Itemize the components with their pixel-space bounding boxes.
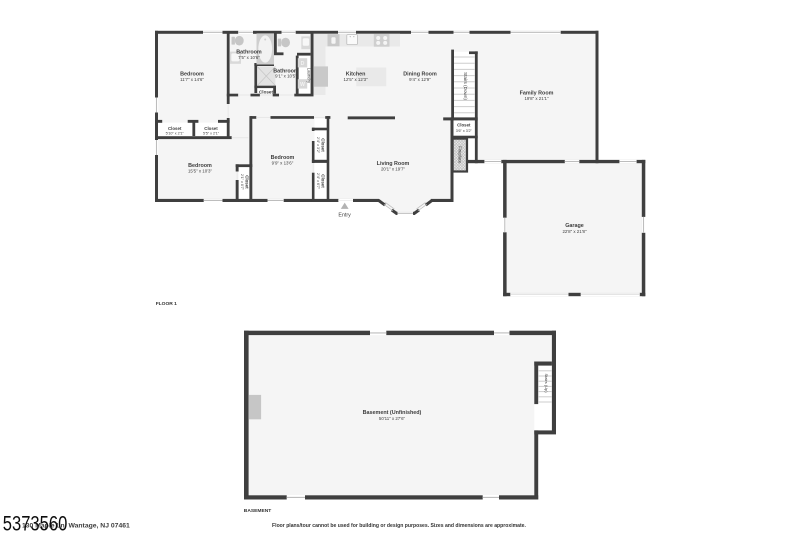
- svg-text:2'4" x 6'7": 2'4" x 6'7": [316, 173, 320, 190]
- svg-text:Closet: Closet: [259, 90, 274, 95]
- svg-text:9'4" x 12'9": 9'4" x 12'9": [409, 77, 431, 82]
- svg-text:Floor plans/tour cannot be use: Floor plans/tour cannot be used for buil…: [272, 523, 526, 529]
- svg-text:2'1" x 6'7": 2'1" x 6'7": [240, 174, 244, 191]
- svg-text:50'11" x 27'6": 50'11" x 27'6": [379, 416, 406, 421]
- svg-text:5'5" x 2'1": 5'5" x 2'1": [203, 131, 220, 135]
- svg-text:11'7" x 14'6": 11'7" x 14'6": [180, 77, 204, 82]
- svg-text:FLOOR 1: FLOOR 1: [156, 301, 177, 307]
- svg-text:9'9" x 13'6": 9'9" x 13'6": [272, 160, 294, 165]
- svg-text:22'8" x 21'8": 22'8" x 21'8": [562, 229, 587, 234]
- svg-text:Stairs (Down): Stairs (Down): [463, 72, 468, 100]
- svg-text:5'10" x 2'1": 5'10" x 2'1": [166, 131, 185, 135]
- svg-text:Fireplace: Fireplace: [457, 146, 462, 164]
- svg-text:Stairs (Up): Stairs (Up): [544, 373, 549, 393]
- svg-text:7'5" x 10'6": 7'5" x 10'6": [238, 55, 260, 60]
- svg-text:W: W: [300, 82, 305, 88]
- svg-text:Entry: Entry: [338, 213, 351, 219]
- svg-text:D: D: [301, 61, 305, 67]
- svg-text:Closet: Closet: [320, 138, 325, 152]
- svg-text:5373560: 5373560: [3, 512, 68, 533]
- svg-text:20'1" x 19'7": 20'1" x 19'7": [381, 167, 406, 172]
- svg-text:9'1" x 10'5": 9'1" x 10'5": [275, 73, 297, 78]
- svg-text:Closet: Closet: [244, 175, 249, 189]
- svg-text:Closet: Closet: [457, 123, 471, 128]
- svg-text:2'4" x 3'2": 2'4" x 3'2": [316, 137, 320, 154]
- svg-text:3'6" x 3'2": 3'6" x 3'2": [456, 129, 473, 133]
- svg-text:Closet: Closet: [204, 126, 218, 131]
- svg-text:19'8" x 21'1": 19'8" x 21'1": [524, 96, 549, 101]
- svg-text:BASEMENT: BASEMENT: [244, 508, 271, 514]
- svg-text:15'5" x 10'3": 15'5" x 10'3": [188, 168, 213, 173]
- svg-text:12'5" x 12'3": 12'5" x 12'3": [344, 77, 369, 82]
- svg-text:Closet: Closet: [320, 174, 325, 188]
- svg-text:Laundry: Laundry: [306, 68, 311, 84]
- svg-text:Closet: Closet: [168, 126, 182, 131]
